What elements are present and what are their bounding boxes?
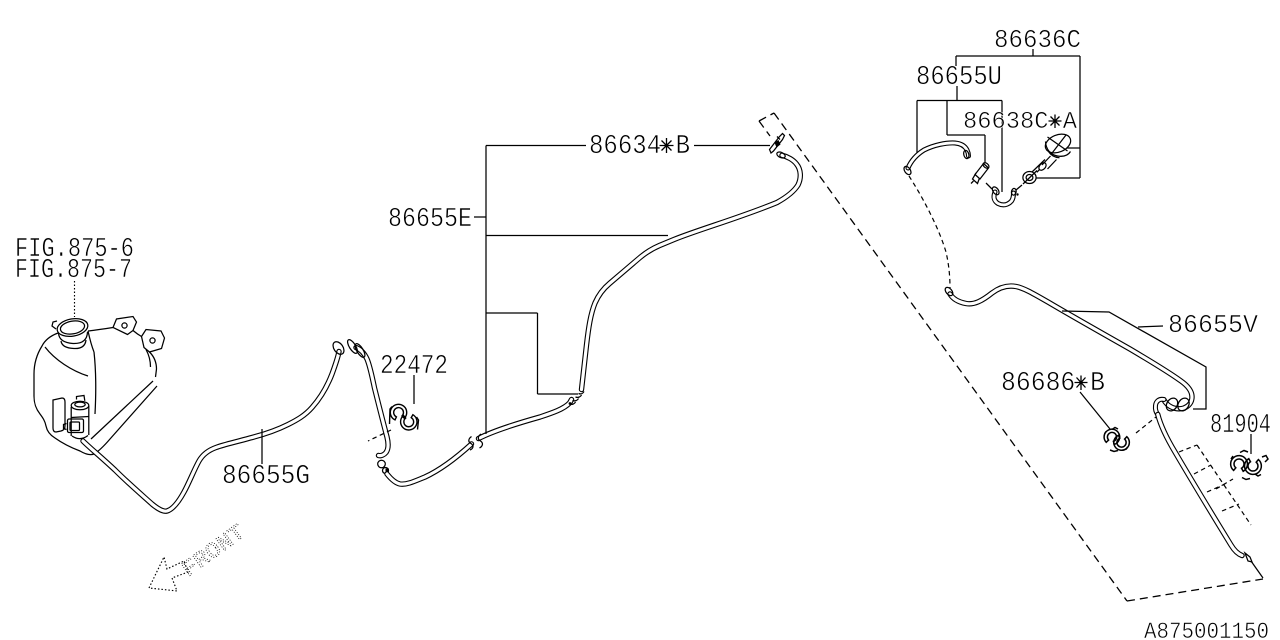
svg-text:22472: 22472 xyxy=(380,352,448,382)
svg-text:86655U: 86655U xyxy=(916,63,1002,93)
svg-text:FIG.875-7: FIG.875-7 xyxy=(15,256,132,286)
svg-text:86634 B: 86634 B xyxy=(589,132,690,162)
svg-text:86655E: 86655E xyxy=(388,205,472,235)
svg-text:81904: 81904 xyxy=(1210,411,1271,441)
svg-text:86655V: 86655V xyxy=(1168,311,1259,340)
svg-text:86655G: 86655G xyxy=(222,462,310,492)
svg-text:A875001150: A875001150 xyxy=(1144,619,1269,640)
svg-text:86636C: 86636C xyxy=(994,25,1081,55)
svg-text:86686 B: 86686 B xyxy=(1001,369,1105,399)
svg-text:86638C A: 86638C A xyxy=(963,109,1078,136)
